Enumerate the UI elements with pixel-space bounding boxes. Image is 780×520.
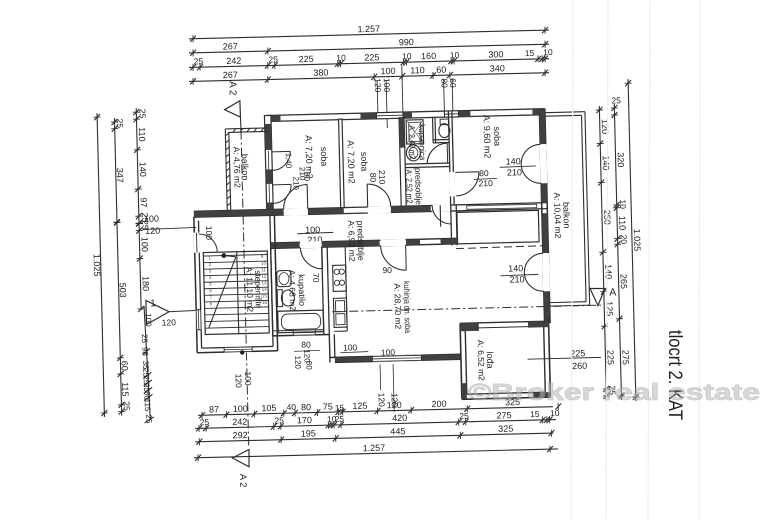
svg-text:445: 445 <box>390 426 405 436</box>
svg-text:242: 242 <box>226 56 241 66</box>
svg-text:A: 4,76 m2: A: 4,76 m2 <box>232 147 243 189</box>
svg-text:125: 125 <box>604 301 614 316</box>
svg-text:A: 4,68 m2: A: 4,68 m2 <box>287 270 298 312</box>
svg-text:10: 10 <box>402 51 412 61</box>
svg-text:105: 105 <box>261 403 276 413</box>
svg-text:100: 100 <box>343 342 358 352</box>
svg-text:100: 100 <box>243 371 253 386</box>
svg-text:15: 15 <box>335 403 345 413</box>
svg-text:120: 120 <box>162 317 177 327</box>
svg-text:120: 120 <box>600 119 610 134</box>
svg-text:15: 15 <box>525 48 535 58</box>
svg-text:160: 160 <box>421 51 436 61</box>
svg-text:120: 120 <box>233 374 243 389</box>
svg-text:1: 1 <box>150 298 156 309</box>
svg-text:A: 6,52 m2: A: 6,52 m2 <box>476 340 487 382</box>
svg-text:1.025: 1.025 <box>632 229 643 252</box>
svg-text:tlocrt 2. KAT: tlocrt 2. KAT <box>664 330 685 420</box>
svg-text:15: 15 <box>530 409 540 419</box>
svg-text:140: 140 <box>603 264 613 279</box>
svg-text:1.025: 1.025 <box>92 254 103 277</box>
svg-text:25: 25 <box>122 401 132 411</box>
svg-text:325: 325 <box>498 424 513 434</box>
svg-text:140: 140 <box>138 162 148 177</box>
svg-text:97: 97 <box>139 197 149 207</box>
svg-text:100: 100 <box>233 404 248 414</box>
svg-text:A: 10,04 m2: A: 10,04 m2 <box>552 192 563 238</box>
svg-text:275: 275 <box>620 350 630 365</box>
svg-text:120: 120 <box>376 393 386 408</box>
svg-text:10: 10 <box>336 53 346 63</box>
svg-text:110: 110 <box>410 65 425 75</box>
svg-text:10: 10 <box>618 199 628 209</box>
svg-text:75: 75 <box>323 402 333 412</box>
svg-text:80: 80 <box>368 173 378 183</box>
svg-text:120: 120 <box>302 349 311 363</box>
svg-text:120: 120 <box>373 78 383 93</box>
svg-text:70: 70 <box>311 273 321 283</box>
svg-text:10: 10 <box>550 408 560 418</box>
svg-text:98: 98 <box>140 347 149 357</box>
svg-text:A: 2,40 m2: A: 2,40 m2 <box>407 125 418 159</box>
svg-text:225: 225 <box>299 54 314 64</box>
svg-text:10: 10 <box>450 50 460 60</box>
svg-text:25: 25 <box>144 414 153 424</box>
svg-text:125: 125 <box>352 401 367 411</box>
svg-text:87: 87 <box>209 404 219 414</box>
svg-text:25: 25 <box>137 109 147 119</box>
svg-text:25: 25 <box>335 414 345 424</box>
svg-text:80: 80 <box>301 402 311 412</box>
svg-text:25: 25 <box>268 54 278 64</box>
svg-text:100: 100 <box>380 66 395 76</box>
svg-text:1.257: 1.257 <box>357 24 380 35</box>
svg-text:120: 120 <box>293 355 302 369</box>
svg-text:210: 210 <box>507 167 522 177</box>
svg-text:100: 100 <box>381 347 396 357</box>
svg-text:120: 120 <box>145 226 160 236</box>
svg-text:503: 503 <box>118 283 128 298</box>
svg-text:225: 225 <box>364 52 379 62</box>
svg-text:soba: soba <box>319 147 329 167</box>
svg-text:320: 320 <box>616 152 626 167</box>
svg-text:140: 140 <box>508 263 523 273</box>
svg-text:25: 25 <box>274 415 284 425</box>
svg-text:A: 9,60 m2: A: 9,60 m2 <box>482 115 493 159</box>
svg-text:195: 195 <box>301 428 316 438</box>
svg-text:90: 90 <box>382 265 392 275</box>
svg-text:25: 25 <box>140 334 149 344</box>
svg-text:347: 347 <box>115 168 125 183</box>
svg-text:420: 420 <box>392 413 407 423</box>
svg-text:A: A <box>609 286 616 298</box>
svg-text:140: 140 <box>505 156 520 166</box>
svg-text:60: 60 <box>120 361 130 371</box>
svg-text:100: 100 <box>204 226 214 241</box>
svg-text:60: 60 <box>448 78 458 88</box>
svg-text:1,40: 1,40 <box>284 153 293 169</box>
svg-text:210: 210 <box>377 170 387 185</box>
svg-text:990: 990 <box>399 37 414 47</box>
svg-text:25: 25 <box>459 411 469 421</box>
svg-text:200: 200 <box>431 399 446 409</box>
svg-text:225: 225 <box>570 348 585 358</box>
svg-text:A: 6,93 m2: A: 6,93 m2 <box>346 220 357 262</box>
svg-text:©Broker real estate: ©Broker real estate <box>468 379 760 405</box>
svg-text:100: 100 <box>144 313 153 327</box>
svg-text:100: 100 <box>144 214 159 224</box>
svg-text:170: 170 <box>297 415 312 425</box>
svg-text:A: 7,20 m2: A: 7,20 m2 <box>346 140 357 184</box>
svg-text:10: 10 <box>261 261 267 266</box>
svg-text:140: 140 <box>601 155 611 170</box>
svg-text:110: 110 <box>137 127 147 142</box>
svg-text:267: 267 <box>223 70 238 80</box>
svg-text:275: 275 <box>496 410 511 420</box>
svg-text:340: 340 <box>490 63 505 73</box>
svg-text:A: 28,70 m2: A: 28,70 m2 <box>392 283 403 329</box>
svg-text:100: 100 <box>139 237 149 252</box>
svg-text:1.257: 1.257 <box>363 443 386 454</box>
svg-text:260: 260 <box>572 361 587 371</box>
svg-text:25: 25 <box>611 95 621 105</box>
svg-text:80: 80 <box>479 168 489 178</box>
svg-text:210: 210 <box>291 176 300 190</box>
svg-text:60: 60 <box>436 65 446 75</box>
svg-text:80: 80 <box>302 172 311 182</box>
svg-text:110: 110 <box>617 216 627 231</box>
svg-text:380: 380 <box>313 68 328 78</box>
svg-text:40: 40 <box>286 402 296 412</box>
svg-text:267: 267 <box>223 41 238 51</box>
svg-text:soba: soba <box>359 152 369 172</box>
svg-text:25: 25 <box>194 56 204 66</box>
svg-text:80: 80 <box>301 339 311 349</box>
svg-text:115: 115 <box>120 382 130 397</box>
svg-text:A: 11,10 m2: A: 11,10 m2 <box>244 267 255 313</box>
svg-text:265: 265 <box>619 274 629 289</box>
svg-text:soba: soba <box>492 126 502 146</box>
svg-text:10: 10 <box>543 47 553 57</box>
svg-text:242: 242 <box>232 417 247 427</box>
svg-text:300: 300 <box>488 49 503 59</box>
svg-text:A 2: A 2 <box>226 81 237 96</box>
svg-text:20: 20 <box>619 234 629 244</box>
svg-text:120: 120 <box>389 393 399 408</box>
svg-text:180: 180 <box>140 276 150 291</box>
svg-text:25: 25 <box>200 417 210 427</box>
svg-text:A 2: A 2 <box>237 474 248 488</box>
svg-text:115: 115 <box>143 398 152 412</box>
svg-text:25: 25 <box>115 118 125 128</box>
svg-text:100: 100 <box>382 78 392 93</box>
svg-text:292: 292 <box>233 430 248 440</box>
svg-text:A: 2,52 m2: A: 2,52 m2 <box>404 169 415 203</box>
